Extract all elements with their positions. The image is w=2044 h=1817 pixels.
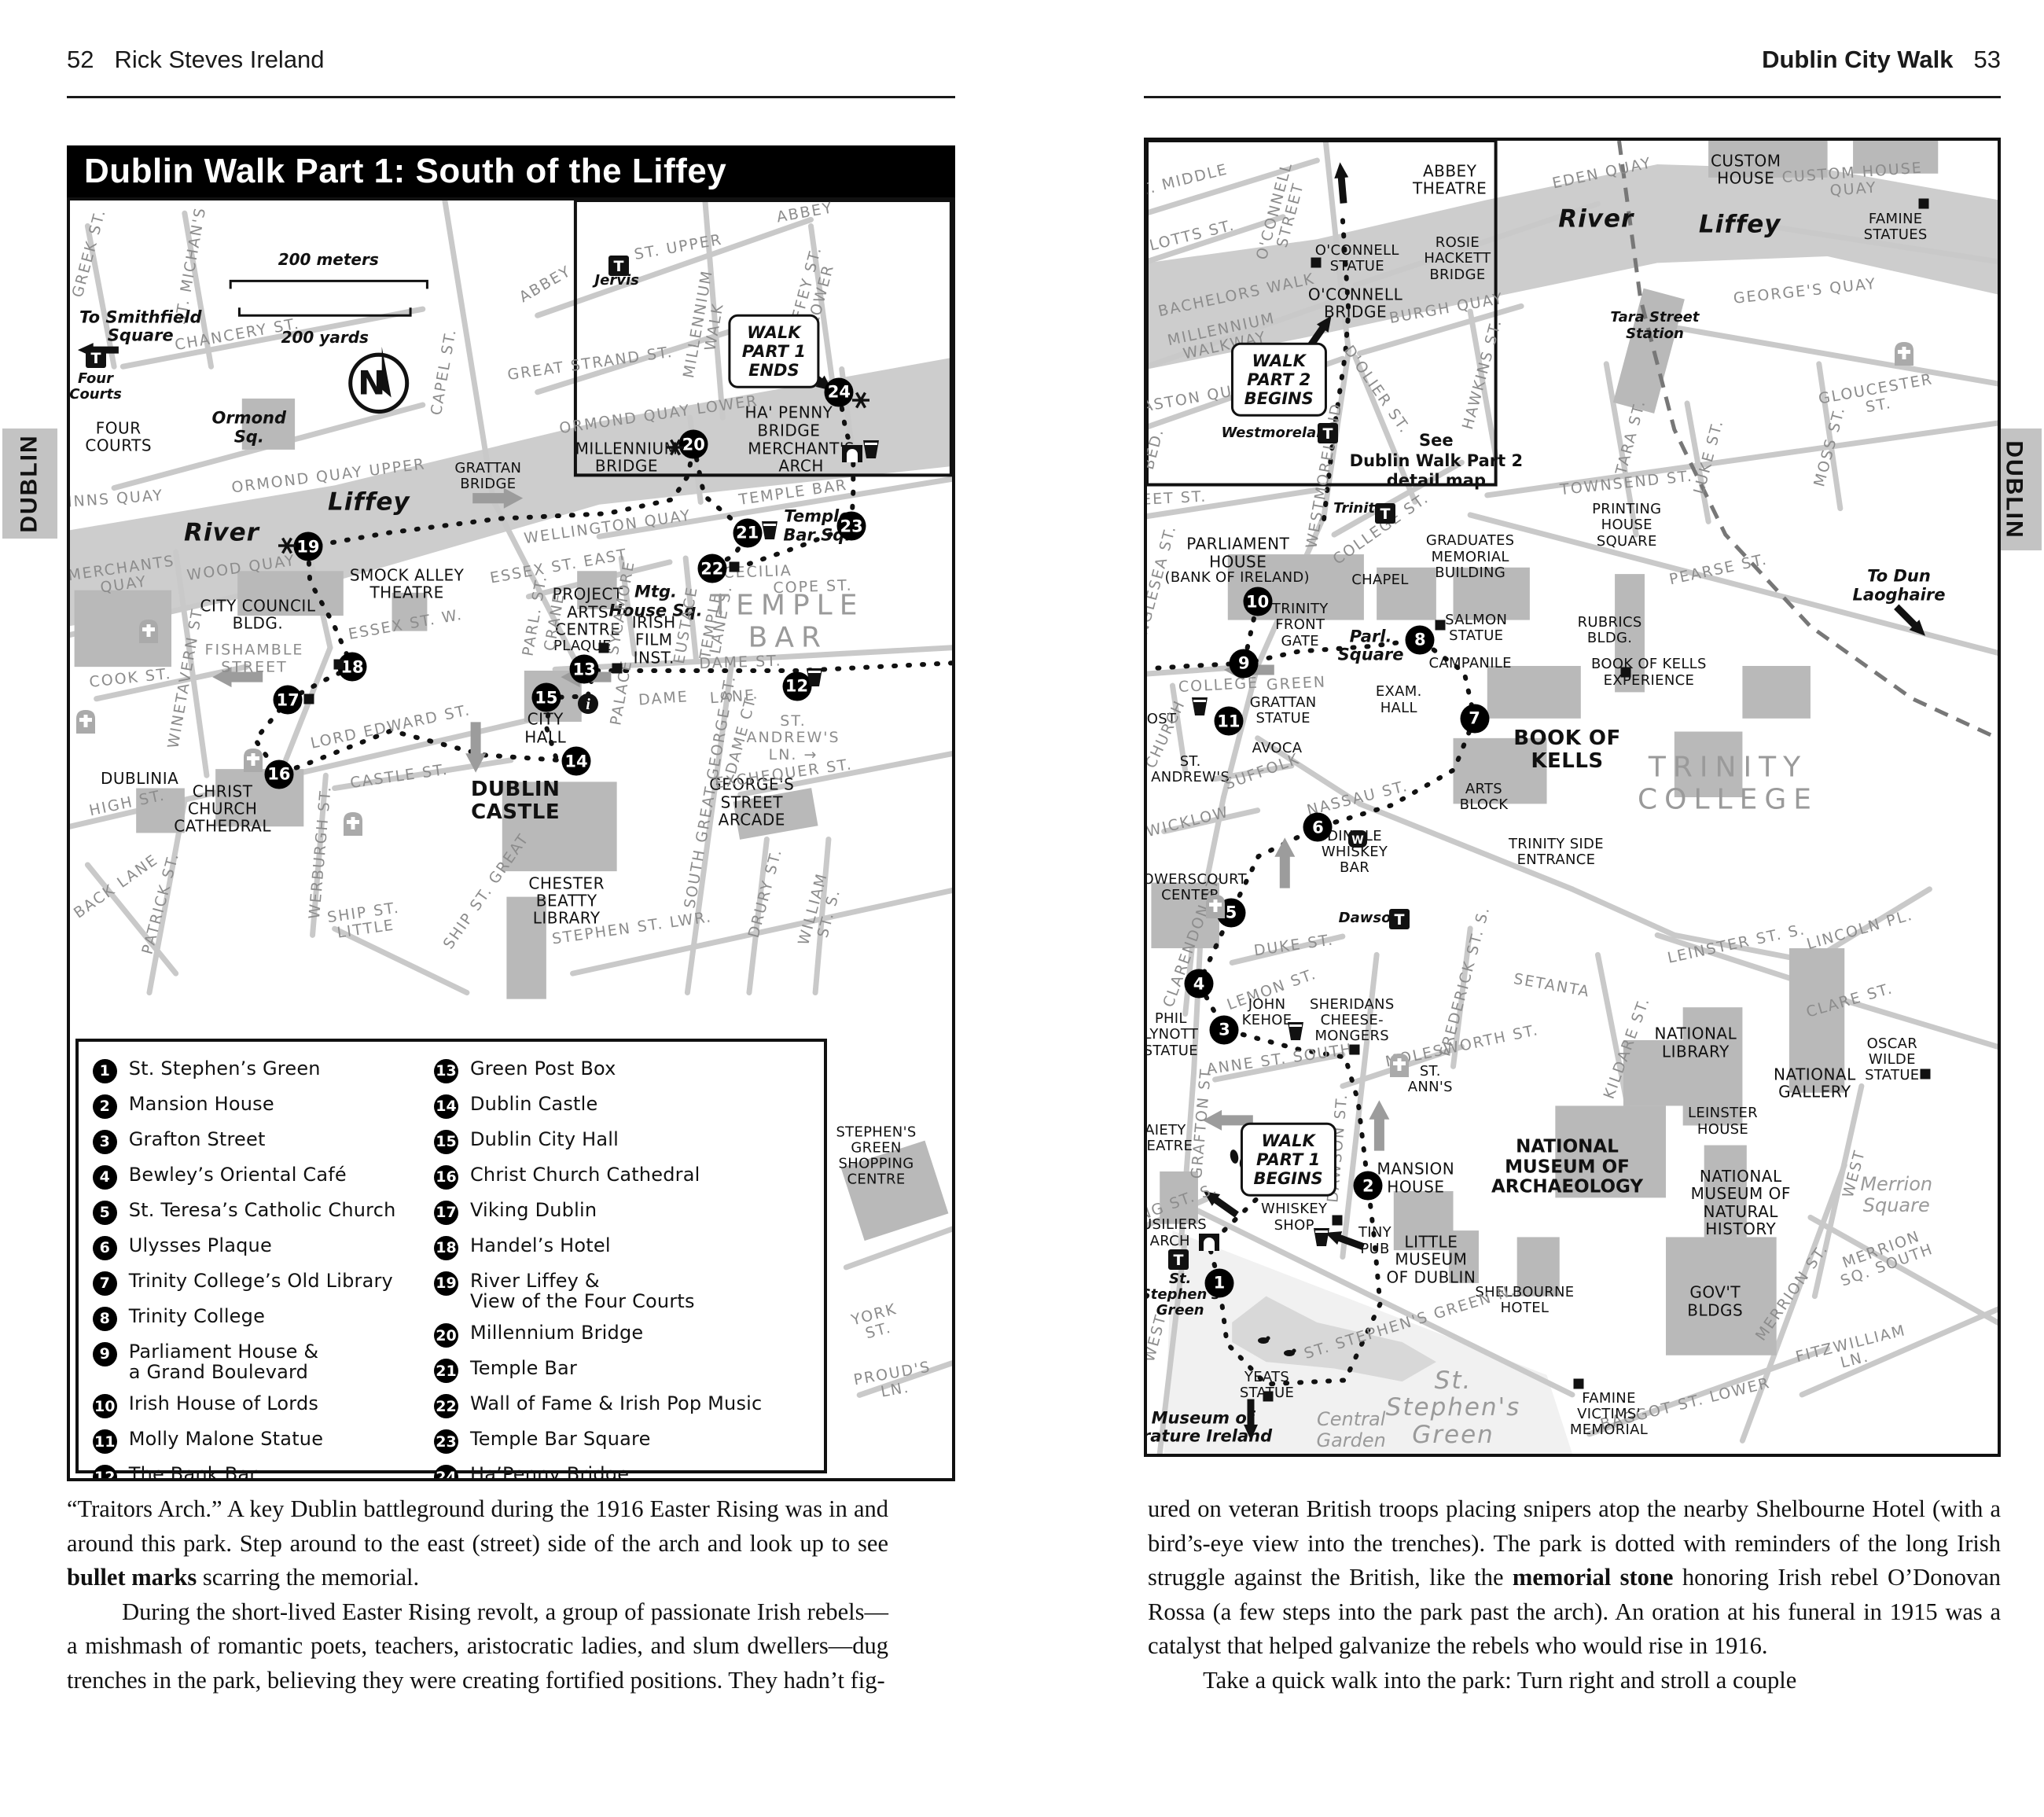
right-header-title: Dublin City Walk (1762, 46, 1953, 73)
legend-badge: 8 (93, 1307, 117, 1331)
church-icon (76, 710, 95, 734)
tstop-icon: T (1318, 423, 1338, 443)
pint-icon (1313, 1225, 1330, 1247)
map-label: GOV'T BLDGS (1687, 1284, 1743, 1319)
map-label: DUBLIN CASTLE (471, 778, 561, 824)
right-page-number: 53 (1974, 46, 2001, 73)
left-dublin-tab: DUBLIN (2, 429, 57, 539)
legend-badge: 19 (434, 1271, 458, 1296)
map-label: CHAPEL (1351, 572, 1408, 588)
legend-item: 11Molly Malone Statue (93, 1429, 434, 1454)
legend-label: St. Stephen’s Green (129, 1058, 321, 1080)
legend-item: 19River Liffey & View of the Four Courts (434, 1271, 819, 1313)
left-map-panel: Dublin Walk Part 1: South of the Liffey … (67, 145, 955, 1475)
map-label: FISHAMBLE STREET (205, 642, 304, 676)
body-paragraph: ured on veteran British troops placing s… (1148, 1492, 2001, 1664)
legend-badge: 3 (93, 1130, 117, 1154)
stop-badge: 19 (293, 532, 322, 561)
church-icon (244, 749, 263, 772)
stop-badge: 21 (733, 518, 762, 547)
legend-item: 10Irish House of Lords (93, 1393, 434, 1418)
tstop-icon: T (608, 256, 629, 276)
sq-icon (598, 642, 608, 653)
svg-text:T: T (1323, 425, 1333, 443)
legend-badge: 5 (93, 1201, 117, 1225)
map-label: CITY COUNCIL BLDG. (200, 597, 316, 632)
legend-item: 3Grafton Street (93, 1129, 434, 1154)
legend-item: 15Dublin City Hall (434, 1129, 819, 1154)
map-label: Merrion Square (1860, 1174, 1932, 1216)
map-label: PRINTING HOUSE SQUARE (1592, 502, 1661, 549)
legend-label: Irish House of Lords (129, 1393, 318, 1414)
pint-icon (806, 665, 823, 687)
left-header-rule (67, 96, 955, 98)
right-map: ST. MIDDLEO'CONNELL STREETABBEY THEATREN… (1144, 138, 2001, 1457)
walk-callout: WALK PART 2 BEGINS (1231, 343, 1327, 417)
map-label: ST. ANN'S (1408, 1064, 1453, 1095)
map-label: DUBLINIA (101, 769, 178, 786)
map-label: COPE ST. (773, 578, 853, 598)
map-label: Four Courts (69, 371, 122, 403)
legend-item: 20Millennium Bridge (434, 1322, 819, 1348)
legend-label: Ha’Penny Bridge (470, 1464, 629, 1481)
map-label: LEINSTER HOUSE (1688, 1105, 1758, 1137)
stop-badge: 8 (1406, 625, 1435, 654)
map-label: NATIONAL GALLERY (1774, 1066, 1856, 1102)
church-icon (344, 812, 362, 836)
map-label: CHESTER BEATTY LIBRARY (528, 874, 605, 927)
svg-text:W: W (1352, 834, 1364, 847)
church-icon (1206, 895, 1225, 918)
map-label: TRINITY FRONT GATE (1272, 601, 1329, 649)
legend-column-right: 13Green Post Box14Dublin Castle15Dublin … (434, 1053, 819, 1466)
svg-text:T: T (613, 258, 623, 275)
legend-label: Temple Bar Square (470, 1429, 651, 1450)
right-map-panel: ST. MIDDLEO'CONNELL STREETABBEY THEATREN… (1144, 138, 2001, 1451)
map-label: (BANK OF IRELAND) (1165, 570, 1310, 586)
right-text-column: ured on veteran British troops placing s… (1148, 1492, 2001, 1698)
tstop-icon: T (1168, 1249, 1189, 1270)
stop-badge: 23 (837, 512, 866, 541)
legend-label: The Bank Bar (129, 1464, 258, 1481)
stop-badge: 3 (1210, 1015, 1239, 1044)
legend-label: Grafton Street (129, 1129, 266, 1150)
legend-label: Temple Bar (470, 1358, 577, 1379)
sq-icon (612, 663, 622, 673)
legend-item: 22Wall of Fame & Irish Pop Music (434, 1393, 819, 1418)
svg-text:N: N (358, 363, 385, 402)
legend-label: Viking Dublin (470, 1200, 597, 1221)
legend-badge: 9 (93, 1342, 117, 1366)
svg-text:T: T (1395, 911, 1405, 929)
map-label: GREEN (1266, 675, 1327, 694)
stop-badge: 6 (1303, 813, 1333, 842)
legend-label: Trinity College (129, 1306, 265, 1327)
map-label: See Dublin Walk Part 2 detail map (1350, 432, 1523, 491)
left-map: N 200 meters 200 yards 1St. Stephen’s Gr… (67, 197, 955, 1481)
legend-label: Mansion House (129, 1094, 274, 1115)
legend-label: St. Teresa’s Catholic Church (129, 1200, 396, 1221)
map-label: RUBRICS BLDG. (1578, 615, 1642, 646)
legend-badge: 11 (93, 1429, 117, 1454)
legend-badge: 22 (434, 1394, 458, 1418)
legend-badge: 1 (93, 1059, 117, 1083)
stop-badge: 22 (697, 554, 726, 583)
sq-icon (334, 659, 344, 669)
church-icon (1390, 1054, 1409, 1077)
legend-badge: 20 (434, 1323, 458, 1348)
duck-icon (1258, 1336, 1270, 1344)
legend-label: Green Post Box (470, 1058, 616, 1080)
map-label: MANSION HOUSE (1377, 1160, 1455, 1196)
map-label: MERCHANT'S ARCH (748, 440, 855, 475)
duck-icon (1284, 1348, 1296, 1356)
left-page-header: 52Rick Steves Ireland (67, 46, 325, 74)
stop-badge: 24 (825, 377, 854, 406)
view-icon (277, 535, 297, 556)
map-label: DAME (638, 689, 689, 709)
arch-icon (1199, 1234, 1219, 1251)
legend-label: Millennium Bridge (470, 1322, 643, 1344)
map-label: MILLENNIUM BRIDGE (575, 440, 678, 475)
legend-label: Ulysses Plaque (129, 1235, 272, 1256)
legend-item: 5St. Teresa’s Catholic Church (93, 1200, 434, 1225)
map-label: TRINITY COLLEGE (1638, 752, 1818, 816)
stop-badge: 9 (1230, 649, 1259, 678)
map-label: BOOK OF KELLS (1513, 727, 1621, 773)
street-line (538, 219, 811, 315)
view-icon (851, 390, 871, 410)
map-label: To Museum of Literature Ireland (1144, 1409, 1272, 1446)
pint-icon (862, 437, 880, 459)
direction-arrow (1274, 837, 1295, 888)
map-label: ST. ANDREW'S (1151, 754, 1230, 785)
legend-item: 1St. Stephen’s Green (93, 1058, 434, 1083)
legend-item: 7Trinity College’s Old Library (93, 1271, 434, 1296)
map-label: TEMPLE BAR (711, 590, 864, 654)
map-label: O'CONNELL STATUE (1315, 243, 1399, 274)
text-run: Take a quick walk into the park: Turn ri… (1203, 1667, 1796, 1694)
bold-text: memorial stone (1513, 1564, 1674, 1591)
stop-badge: 15 (531, 683, 561, 712)
legend-item: 23Temple Bar Square (434, 1429, 819, 1454)
scale-meters-label: 200 meters (278, 250, 379, 269)
legend-column-left: 1St. Stephen’s Green2Mansion House3Graft… (93, 1053, 434, 1466)
map-legend: 1St. Stephen’s Green2Mansion House3Graft… (75, 1039, 827, 1473)
legend-badge: 18 (434, 1236, 458, 1260)
tstop-icon: T (86, 348, 106, 368)
stop-badge: 2 (1354, 1171, 1383, 1201)
legend-badge: 14 (434, 1094, 458, 1119)
map-label: GAIETY THEATRE (1144, 1123, 1193, 1154)
legend-label: Bewley’s Oriental Café (129, 1164, 347, 1186)
map-label: FAMINE STATUES (1864, 211, 1928, 243)
map-label: To Smithfield Square (79, 308, 202, 345)
stop-badge: 17 (274, 686, 303, 715)
scale-bar-yards (239, 307, 410, 315)
map-label: FAMINE VICTIMS' MEMORIAL (1570, 1391, 1648, 1438)
legend-item: 14Dublin Castle (434, 1094, 819, 1119)
stop-badge: 10 (1243, 587, 1272, 616)
left-page-number: 52 (67, 46, 94, 73)
svg-text:i: i (586, 696, 590, 713)
legend-item: 18Handel’s Hotel (434, 1235, 819, 1260)
pint-icon (761, 518, 778, 540)
right-tab-label: DUBLIN (2001, 440, 2027, 539)
text-run: “Traitors Arch.” A key Dublin battlegrou… (67, 1495, 888, 1557)
text-run: During the short-lived Easter Rising rev… (67, 1598, 888, 1694)
legend-label: Dublin Castle (470, 1094, 598, 1115)
legend-label: River Liffey & View of the Four Courts (470, 1271, 695, 1313)
sq-icon (1436, 620, 1446, 631)
left-map-title: Dublin Walk Part 1: South of the Liffey (67, 145, 955, 197)
map-label: TRINITY SIDE ENTRANCE (1509, 837, 1604, 868)
street-line (1657, 325, 1998, 384)
stop-badge: 13 (570, 655, 599, 684)
building (1742, 666, 1811, 719)
map-label: FUSILIERS ARCH (1144, 1217, 1207, 1249)
tstop-icon: T (1389, 909, 1410, 929)
map-label: SHERIDANS CHEESE- MONGERS (1310, 997, 1395, 1044)
bold-text: bullet marks (67, 1564, 197, 1591)
map-label: Liffey (328, 488, 410, 516)
walk-callout: WALK PART 1 BEGINS (1241, 1123, 1336, 1197)
building (1613, 289, 1685, 414)
sq-icon (1921, 1069, 1931, 1080)
legend-item: 17Viking Dublin (434, 1200, 819, 1225)
map-label: NATIONAL LIBRARY (1655, 1025, 1737, 1061)
sq-icon (1350, 1044, 1360, 1054)
legend-badge: 4 (93, 1165, 117, 1190)
stop-badge: 16 (264, 760, 293, 789)
legend-badge: 2 (93, 1094, 117, 1119)
building (1487, 666, 1581, 719)
street-line (1572, 889, 1675, 935)
legend-badge: 6 (93, 1236, 117, 1260)
right-header-rule (1144, 96, 2001, 98)
legend-badge: 13 (434, 1059, 458, 1083)
map-label: EXAM. HALL (1376, 684, 1422, 715)
map-label: GRADUATES MEMORIAL BUILDING (1426, 533, 1514, 580)
map-label: Parl. Square (1338, 627, 1404, 664)
sq-icon (1333, 1215, 1343, 1225)
sq-icon (1573, 1379, 1583, 1389)
pint-icon (1191, 694, 1208, 716)
legend-badge: 7 (93, 1271, 117, 1296)
svg-text:T: T (90, 350, 101, 367)
legend-item: 21Temple Bar (434, 1358, 819, 1383)
svg-text:T: T (1380, 506, 1390, 523)
pint-icon (1287, 1019, 1304, 1041)
church-icon (1895, 342, 1913, 366)
map-label: OSCAR WILDE STATUE (1865, 1036, 1919, 1083)
sq-icon (304, 693, 314, 704)
legend-item: 6Ulysses Plaque (93, 1235, 434, 1260)
map-label: BOOK OF KELLS EXPERIENCE (1591, 657, 1707, 688)
legend-item: 4Bewley’s Oriental Café (93, 1164, 434, 1190)
map-label: PHIL LYNOTT STATUE (1144, 1011, 1198, 1058)
legend-label: Trinity College’s Old Library (129, 1271, 393, 1292)
sq-icon (729, 562, 739, 572)
legend-item: 9Parliament House & a Grand Boulevard (93, 1341, 434, 1384)
sq-icon (1311, 258, 1322, 268)
left-tab-label: DUBLIN (17, 434, 43, 532)
right-page-header: Dublin City Walk53 (1144, 46, 2001, 74)
map-label: SALMON STATUE (1445, 612, 1507, 643)
direction-arrow (1369, 1100, 1389, 1150)
left-text-column: “Traitors Arch.” A key Dublin battlegrou… (67, 1492, 888, 1698)
tstop-icon: T (1375, 503, 1395, 524)
map-label: LITTLE MUSEUM OF DUBLIN (1386, 1233, 1476, 1286)
map-label: Ormond Sq. (212, 410, 287, 447)
map-label: JOHN KEHOE (1242, 997, 1292, 1028)
map-label: SMOCK ALLEY THEATRE (350, 566, 464, 601)
legend-label: Christ Church Cathedral (470, 1164, 700, 1186)
map-label: St. Stephen's Green (1386, 1366, 1521, 1448)
map-label: CHRIST CHURCH CATHEDRAL (174, 782, 271, 835)
map-label: CAMPANILE (1429, 656, 1512, 671)
compass-rose: N (351, 347, 407, 411)
body-paragraph: During the short-lived Easter Rising rev… (67, 1595, 888, 1698)
legend-item: 12The Bank Bar (93, 1464, 434, 1481)
map-label: Liffey (1699, 211, 1781, 239)
left-header-title: Rick Steves Ireland (114, 46, 324, 73)
legend-badge: 10 (93, 1394, 117, 1418)
stop-badge: 14 (562, 747, 591, 776)
legend-badge: 23 (434, 1429, 458, 1454)
stop-badge: 4 (1185, 969, 1214, 999)
walk-callout: WALK PART 1 ENDS (729, 314, 819, 388)
stop-badge: 11 (1214, 707, 1243, 736)
church-icon (139, 620, 158, 643)
map-label: FOUR COURTS (85, 419, 152, 454)
map-label: GRATTAN STATUE (1250, 695, 1317, 726)
legend-badge: 17 (434, 1201, 458, 1225)
map-label: GRATTAN BRIDGE (454, 461, 521, 492)
map-label: ROSIE HACKETT BRIDGE (1424, 235, 1491, 282)
sq-icon (1621, 668, 1631, 678)
text-run: scarring the memorial. (197, 1564, 419, 1591)
sq-icon (1918, 199, 1928, 209)
map-label: NATIONAL MUSEUM OF ARCHAEOLOGY (1491, 1137, 1643, 1197)
map-label: River (184, 519, 259, 546)
legend-item: 16Christ Church Cathedral (434, 1164, 819, 1190)
view-icon (665, 437, 686, 458)
legend-badge: 12 (93, 1465, 117, 1481)
legend-label: Wall of Fame & Irish Pop Music (470, 1393, 762, 1414)
legend-badge: 16 (434, 1165, 458, 1190)
legend-label: Dublin City Hall (470, 1129, 619, 1150)
legend-badge: 21 (434, 1359, 458, 1383)
legend-label: Parliament House & a Grand Boulevard (129, 1341, 319, 1384)
scale-bar-meters (230, 281, 427, 289)
map-label: LANE (709, 687, 756, 707)
legend-label: Handel’s Hotel (470, 1235, 611, 1256)
map-label: NATIONAL MUSEUM OF NATURAL HISTORY (1691, 1168, 1791, 1238)
legend-label: Molly Malone Statue (129, 1429, 323, 1450)
sq-icon (1263, 1391, 1273, 1401)
stop-badge: 7 (1460, 704, 1489, 733)
legend-item: 24Ha’Penny Bridge (434, 1464, 819, 1481)
body-paragraph: “Traitors Arch.” A key Dublin battlegrou… (67, 1492, 888, 1595)
svg-text:T: T (1174, 1252, 1184, 1269)
barrel-icon: W (1348, 830, 1367, 848)
map-label: River (1558, 206, 1634, 234)
map-label: IRISH FILM INST. (632, 613, 676, 666)
legend-item: 2Mansion House (93, 1094, 434, 1119)
map-label: STEPHEN'S GREEN SHOPPING CENTRE (836, 1124, 916, 1188)
map-label: Central Garden (1316, 1409, 1385, 1451)
book-spread: 52Rick Steves Ireland Dublin City Walk53… (0, 0, 2044, 1817)
legend-badge: 15 (434, 1130, 458, 1154)
map-label: CITY HALL (524, 711, 566, 746)
map-label: PARLIAMENT HOUSE (1186, 535, 1289, 571)
body-paragraph: Take a quick walk into the park: Turn ri… (1148, 1664, 2001, 1698)
info-icon: i (577, 693, 599, 715)
legend-badge: 24 (434, 1465, 458, 1481)
legend-item: 8Trinity College (93, 1306, 434, 1331)
map-label: Tara Street Station (1610, 310, 1699, 341)
map-label: ARTS BLOCK (1460, 782, 1509, 813)
map-label: To Dun Laoghaire (1853, 568, 1946, 605)
map-label: ABBEY THEATRE (1413, 163, 1487, 198)
map-label: ST. ANDREW'S LN. → (746, 713, 840, 763)
stop-badge: 1 (1204, 1268, 1233, 1297)
pointer-arrow (1334, 162, 1348, 203)
map-label: CUSTOM HOUSE (1711, 152, 1781, 187)
arch-icon (842, 445, 862, 462)
street-line (846, 1229, 952, 1267)
legend-item: 13Green Post Box (434, 1058, 819, 1083)
